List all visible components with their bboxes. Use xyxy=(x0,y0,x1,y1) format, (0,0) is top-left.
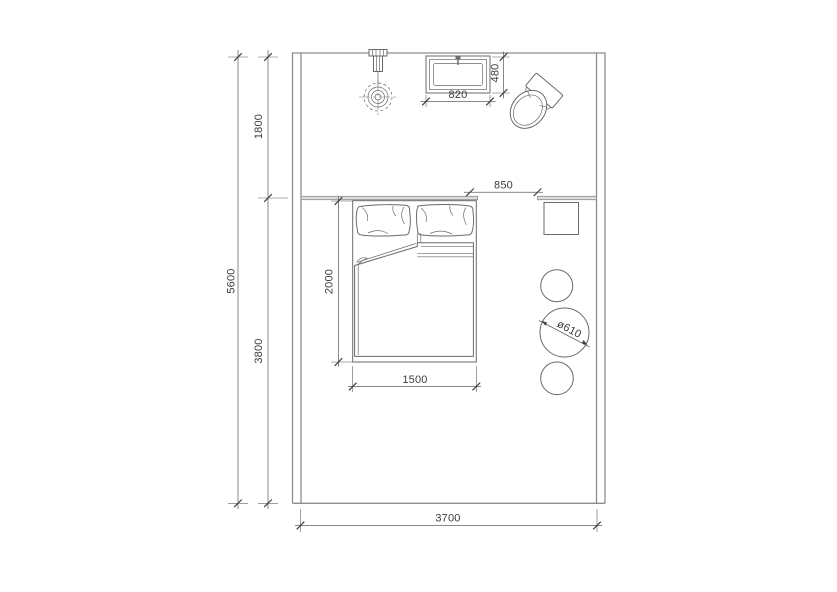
pendant-lamp-icon xyxy=(359,50,397,116)
toilet-icon xyxy=(502,73,563,136)
dim-label-3800: 3800 xyxy=(253,338,265,363)
dim-label-1500: 1500 xyxy=(402,374,427,386)
floor-plan-drawing: 5600 1800 3800 3700 2000 1500 xyxy=(0,0,837,592)
headboard-shelf-left xyxy=(301,196,478,199)
dim-zone-depths: 1800 3800 xyxy=(253,50,288,509)
dim-label-480: 480 xyxy=(490,64,502,83)
double-bed xyxy=(353,201,477,362)
dim-room-width: 3700 xyxy=(295,509,602,532)
dim-label-850: 850 xyxy=(494,180,513,192)
pillow-left-icon xyxy=(356,205,410,236)
bedside-table-icon xyxy=(544,203,579,235)
dim-passage: 850 xyxy=(464,180,543,197)
dim-bed-width: 1500 xyxy=(348,366,481,392)
dim-label-2000: 2000 xyxy=(324,269,336,294)
stool-bottom-icon xyxy=(541,362,574,395)
floor-plan-page: 5600 1800 3800 3700 2000 1500 xyxy=(0,0,837,592)
dim-basin-depth: 480 xyxy=(490,52,511,99)
wash-basin-icon xyxy=(426,56,490,93)
stool-top-icon xyxy=(541,270,573,302)
dim-label-1800: 1800 xyxy=(253,114,265,139)
dim-total-depth: 5600 xyxy=(226,50,249,509)
pillow-right-icon xyxy=(416,205,473,237)
dim-label-3700: 3700 xyxy=(435,513,460,525)
dim-bed-length: 2000 xyxy=(324,197,353,367)
dim-label-820: 820 xyxy=(449,89,468,101)
dim-label-5600: 5600 xyxy=(226,268,238,293)
headboard-shelf-right xyxy=(538,196,597,199)
